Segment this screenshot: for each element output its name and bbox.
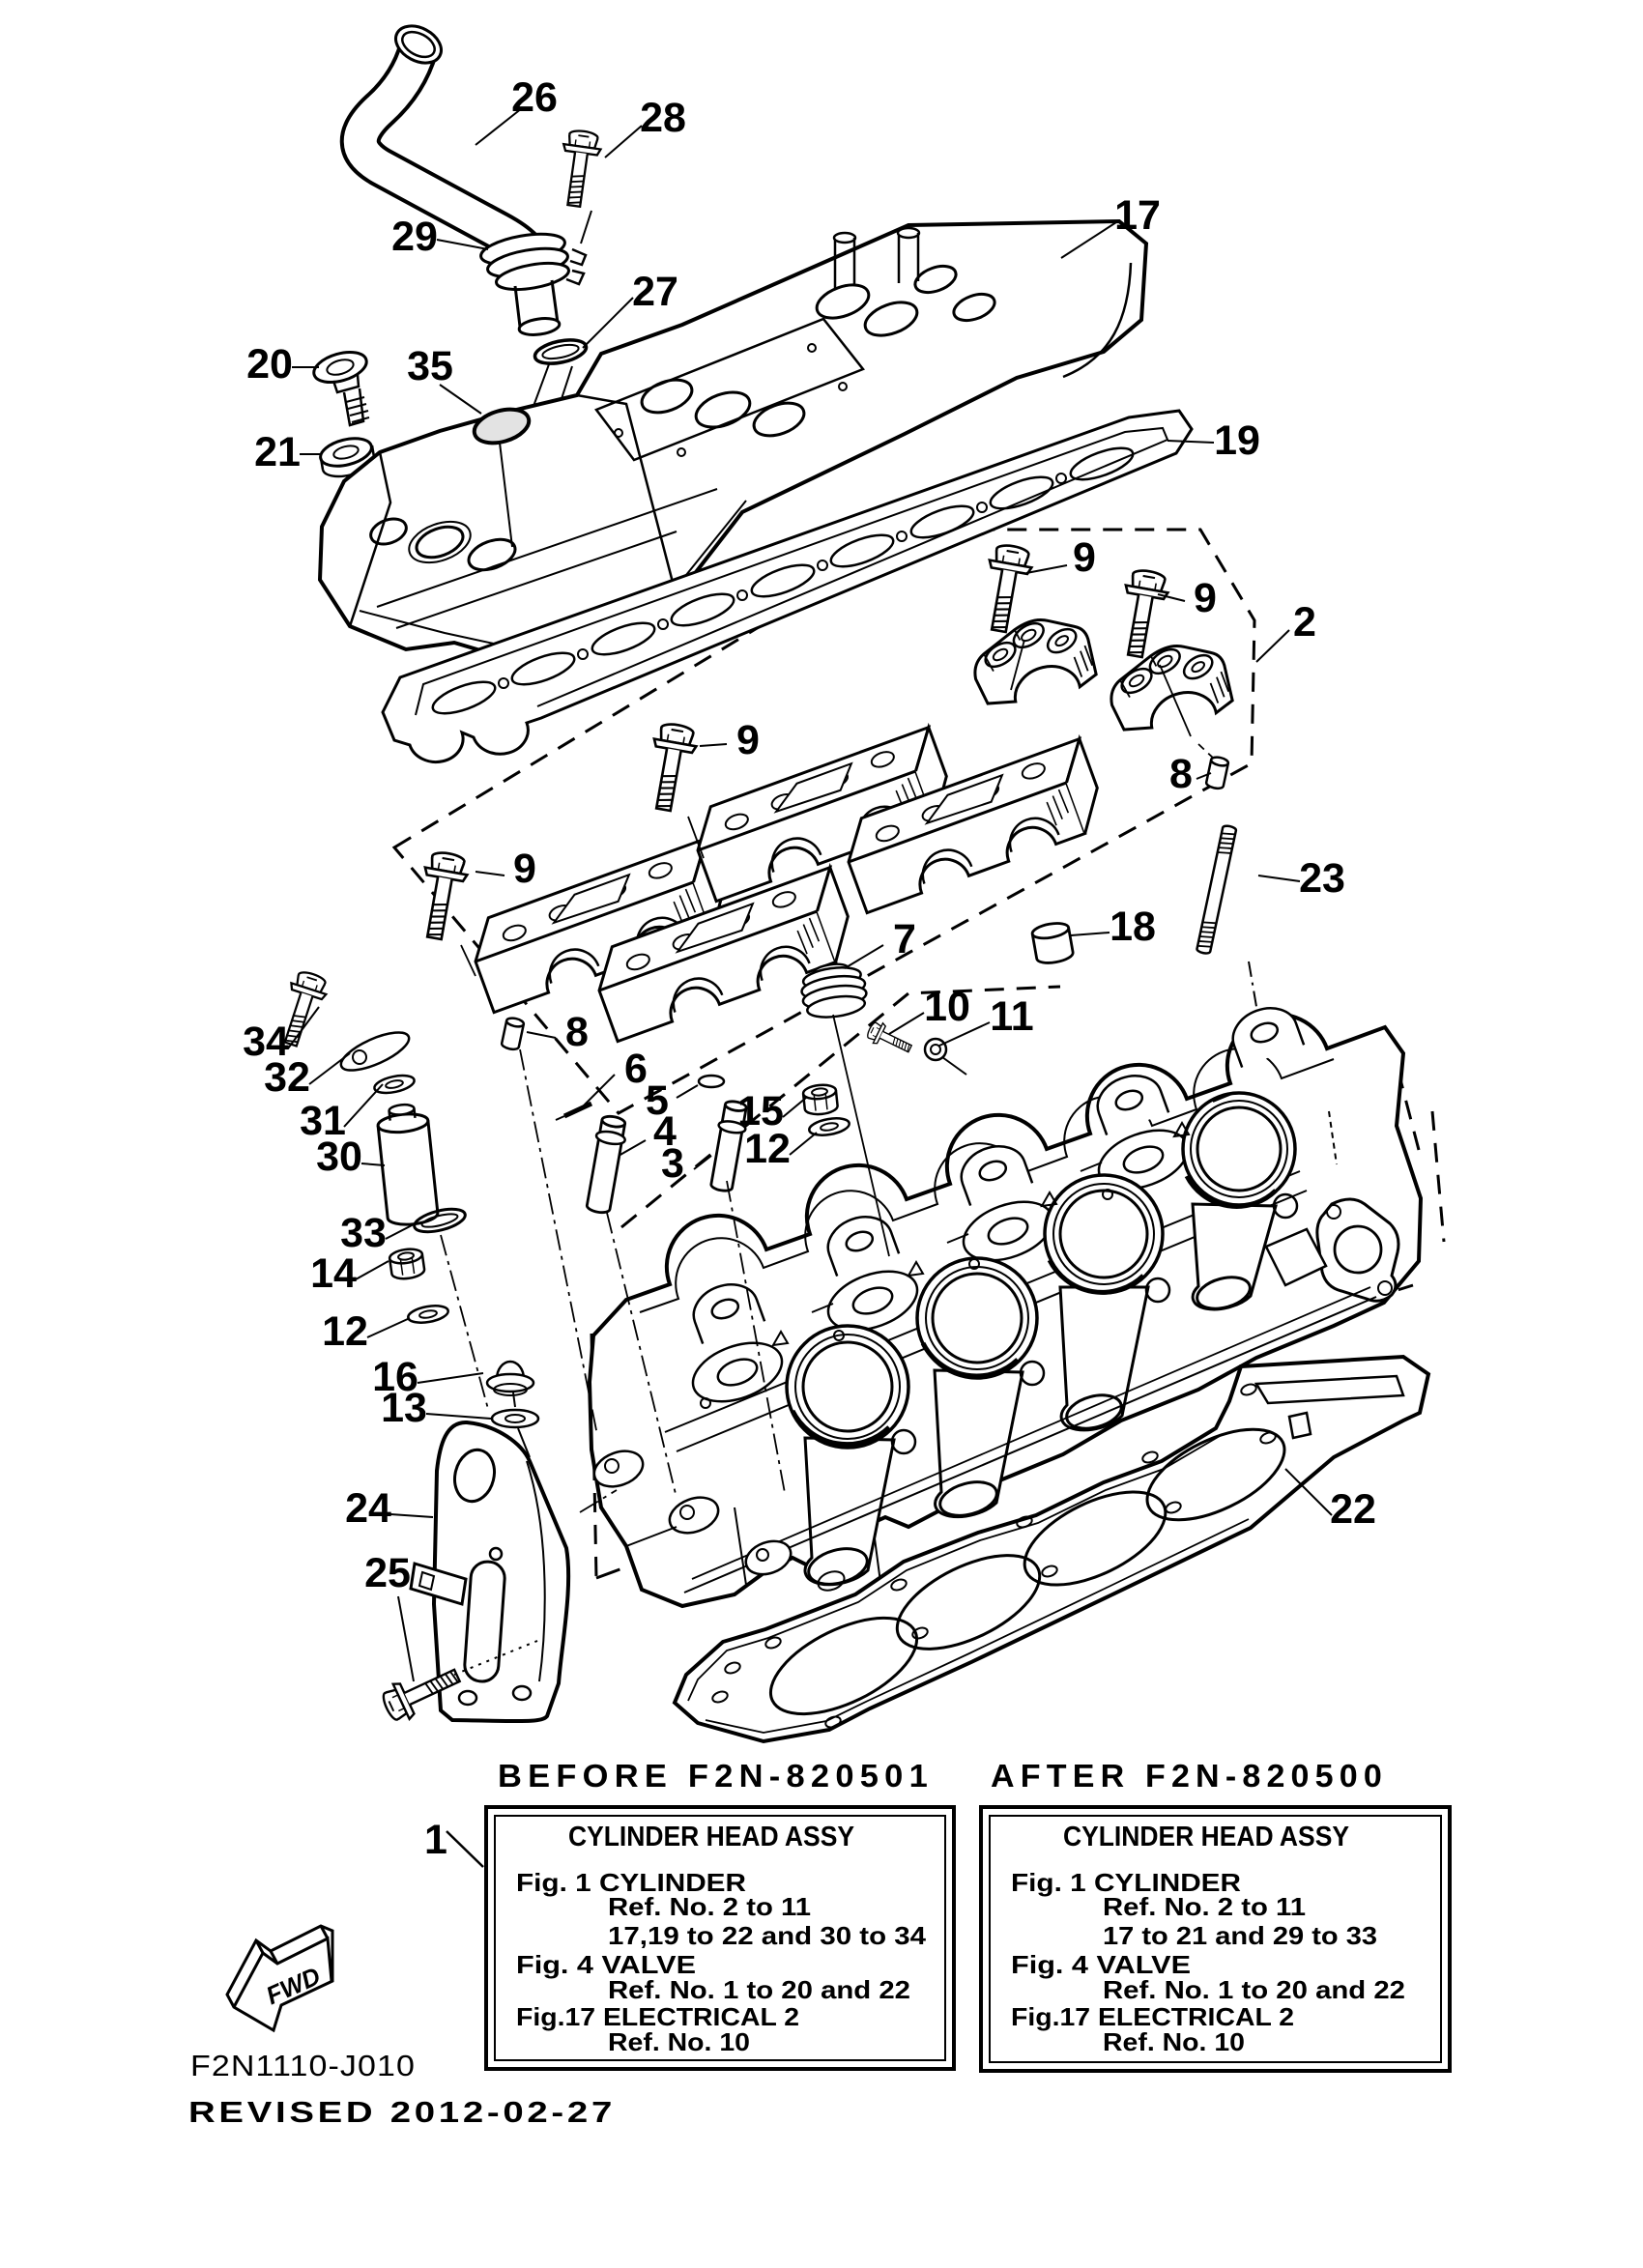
svg-text:20: 20 — [246, 341, 293, 388]
svg-text:28: 28 — [640, 95, 686, 141]
svg-text:Ref. No. 1 to 20 and 22: Ref. No. 1 to 20 and 22 — [1103, 1975, 1405, 2004]
svg-text:Ref. No. 1 to 20 and 22: Ref. No. 1 to 20 and 22 — [608, 1975, 910, 2004]
svg-text:17: 17 — [1114, 192, 1161, 239]
svg-text:7: 7 — [893, 916, 916, 962]
svg-text:9: 9 — [1073, 534, 1096, 581]
svg-text:Ref. No. 2 to 11: Ref. No. 2 to 11 — [608, 1892, 811, 1921]
svg-text:35: 35 — [407, 343, 453, 389]
svg-text:BEFORE F2N-820501: BEFORE F2N-820501 — [498, 1758, 934, 1794]
svg-text:23: 23 — [1299, 855, 1345, 902]
svg-text:Ref. No. 10: Ref. No. 10 — [608, 2027, 750, 2056]
svg-text:6: 6 — [624, 1046, 648, 1092]
svg-text:CYLINDER HEAD ASSY: CYLINDER HEAD ASSY — [568, 1822, 854, 1852]
svg-text:19: 19 — [1214, 417, 1260, 464]
svg-text:8: 8 — [565, 1009, 589, 1055]
svg-text:Ref. No. 10: Ref. No. 10 — [1103, 2027, 1245, 2056]
svg-text:2: 2 — [1293, 599, 1316, 646]
svg-text:12: 12 — [744, 1126, 791, 1172]
svg-text:17 to 21 and 29 to 33: 17 to 21 and 29 to 33 — [1103, 1921, 1377, 1950]
svg-text:AFTER F2N-820500: AFTER F2N-820500 — [991, 1758, 1388, 1794]
svg-text:21: 21 — [254, 429, 301, 475]
svg-text:26: 26 — [511, 74, 558, 121]
svg-text:18: 18 — [1110, 904, 1156, 950]
svg-text:33: 33 — [340, 1210, 387, 1256]
svg-text:10: 10 — [924, 984, 970, 1030]
svg-text:REVISED 2012-02-27: REVISED 2012-02-27 — [188, 2095, 616, 2129]
svg-text:9: 9 — [736, 717, 760, 763]
svg-text:17,19 to 22 and 30 to 34: 17,19 to 22 and 30 to 34 — [608, 1921, 927, 1950]
svg-text:24: 24 — [345, 1485, 391, 1532]
svg-text:8: 8 — [1169, 751, 1193, 797]
svg-text:25: 25 — [364, 1550, 411, 1596]
svg-text:32: 32 — [264, 1054, 310, 1101]
svg-text:14: 14 — [310, 1250, 357, 1297]
svg-text:27: 27 — [632, 269, 678, 315]
svg-text:11: 11 — [990, 993, 1033, 1040]
svg-text:13: 13 — [381, 1385, 427, 1431]
svg-text:30: 30 — [316, 1134, 362, 1180]
svg-text:F2N1110-J010: F2N1110-J010 — [190, 2049, 416, 2082]
svg-text:CYLINDER HEAD ASSY: CYLINDER HEAD ASSY — [1063, 1822, 1349, 1852]
svg-text:9: 9 — [1194, 575, 1217, 621]
svg-text:9: 9 — [513, 846, 536, 892]
svg-text:3: 3 — [661, 1140, 684, 1187]
svg-text:1: 1 — [424, 1817, 447, 1863]
svg-text:Ref. No. 2 to 11: Ref. No. 2 to 11 — [1103, 1892, 1306, 1921]
svg-text:29: 29 — [391, 214, 438, 260]
svg-text:12: 12 — [322, 1308, 368, 1355]
svg-text:22: 22 — [1330, 1486, 1376, 1533]
